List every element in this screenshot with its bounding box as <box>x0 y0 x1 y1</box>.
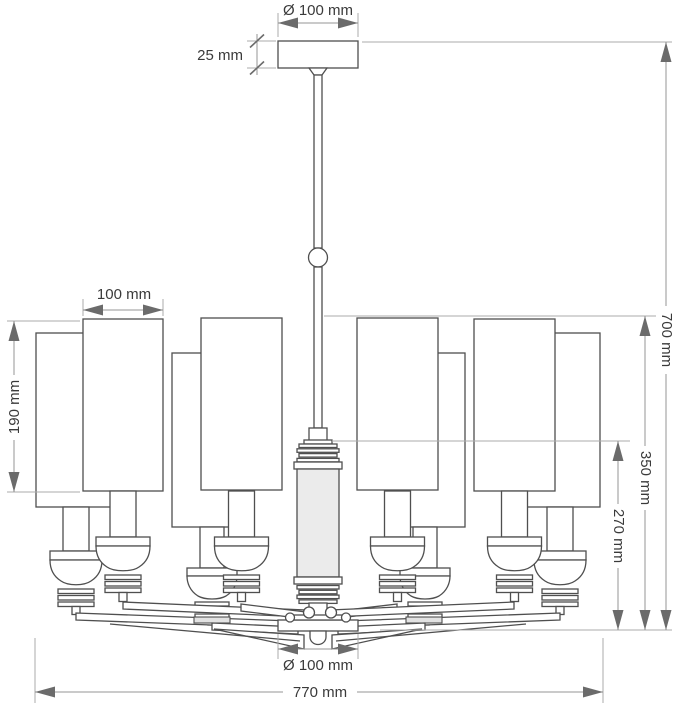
column-cap-bottom <box>294 577 342 584</box>
dim-shade-height-label: 190 mm <box>6 380 23 434</box>
shade <box>83 319 163 491</box>
finial <box>310 631 326 645</box>
arm-curl <box>304 607 315 618</box>
dim-shade-width-label: 100 mm <box>97 286 151 303</box>
ball-joint <box>309 248 328 267</box>
hanging-rod <box>314 267 322 428</box>
candle-holder <box>534 507 586 615</box>
center-column <box>294 428 342 617</box>
arm-curl <box>286 613 295 622</box>
column-rib <box>297 449 339 453</box>
dim-total-height-label: 700 mm <box>658 313 675 367</box>
dim-canopy-diameter-label: Ø 100 mm <box>283 2 353 19</box>
arm-plate <box>194 617 230 623</box>
dim-column-height-label: 270 mm <box>610 509 627 563</box>
chandelier-technical-drawing: Ø 100 mm 25 mm 100 mm 190 mm 700 m <box>0 0 680 706</box>
column-rib <box>299 454 337 458</box>
ceiling-canopy <box>278 41 358 68</box>
column-rib <box>299 444 337 448</box>
column-cap-top <box>294 462 342 469</box>
canopy-neck <box>309 68 327 75</box>
arm-curl <box>326 607 337 618</box>
dim-canopy-height-label: 25 mm <box>197 47 243 64</box>
arm-plate <box>406 617 442 623</box>
shade-width-dimension: 100 mm <box>83 286 163 316</box>
shade <box>474 319 555 491</box>
candle-holder <box>50 507 102 615</box>
canopy-diameter-dimension: Ø 100 mm <box>278 2 358 37</box>
dim-total-width-label: 770 mm <box>293 684 347 701</box>
arm-curl <box>342 613 351 622</box>
canopy-height-dimension: 25 mm <box>197 34 276 75</box>
shade <box>201 318 282 490</box>
column-rib <box>297 595 339 599</box>
dim-hub-diameter-label: Ø 100 mm <box>283 657 353 674</box>
dim-body-height-label: 350 mm <box>637 451 654 505</box>
shade <box>357 318 438 490</box>
suspension <box>278 41 358 428</box>
hanging-rod <box>314 75 322 248</box>
column-rib <box>297 586 339 590</box>
column-collar <box>309 428 327 441</box>
column-body <box>297 469 339 577</box>
column-rib <box>299 590 337 594</box>
